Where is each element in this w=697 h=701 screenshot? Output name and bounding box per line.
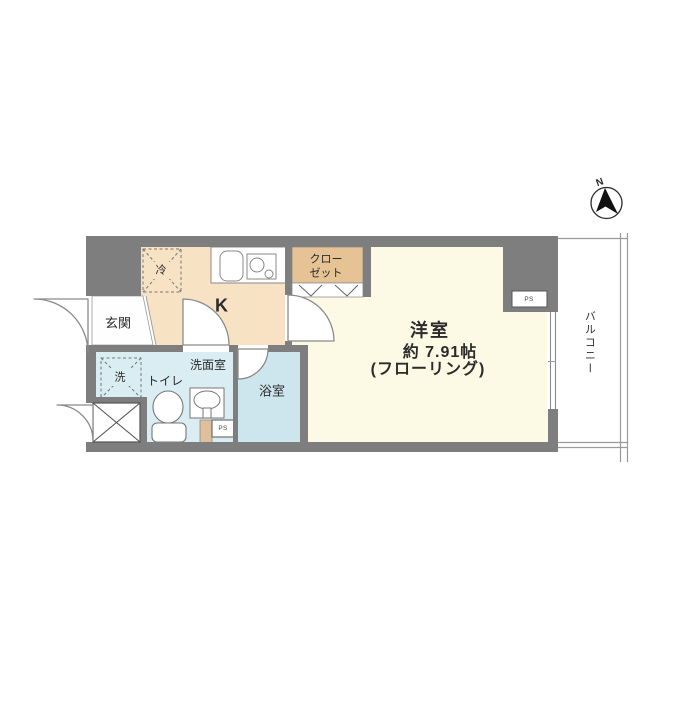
toilet-bowl: [153, 391, 183, 423]
entrance-door-swing: [34, 299, 88, 353]
balcony-outline: [558, 233, 628, 462]
vanity-tap: [203, 408, 211, 418]
north-compass: [591, 188, 622, 219]
balcony-window: [547, 312, 558, 409]
refrigerator-label-bg: [152, 262, 172, 279]
door-frame-block: [200, 420, 212, 443]
kitchen-sink: [220, 251, 243, 281]
closet-area: [292, 247, 363, 283]
pipe-space-bottom-box: [212, 420, 234, 437]
meter-box: [86, 403, 140, 442]
toilet-tank: [152, 423, 186, 442]
stove: [247, 254, 276, 279]
floor-plan: [0, 0, 697, 701]
pipe-space-top-box: [512, 291, 547, 307]
washer-label-bg: [110, 369, 130, 386]
entrance-floor: [92, 296, 153, 345]
